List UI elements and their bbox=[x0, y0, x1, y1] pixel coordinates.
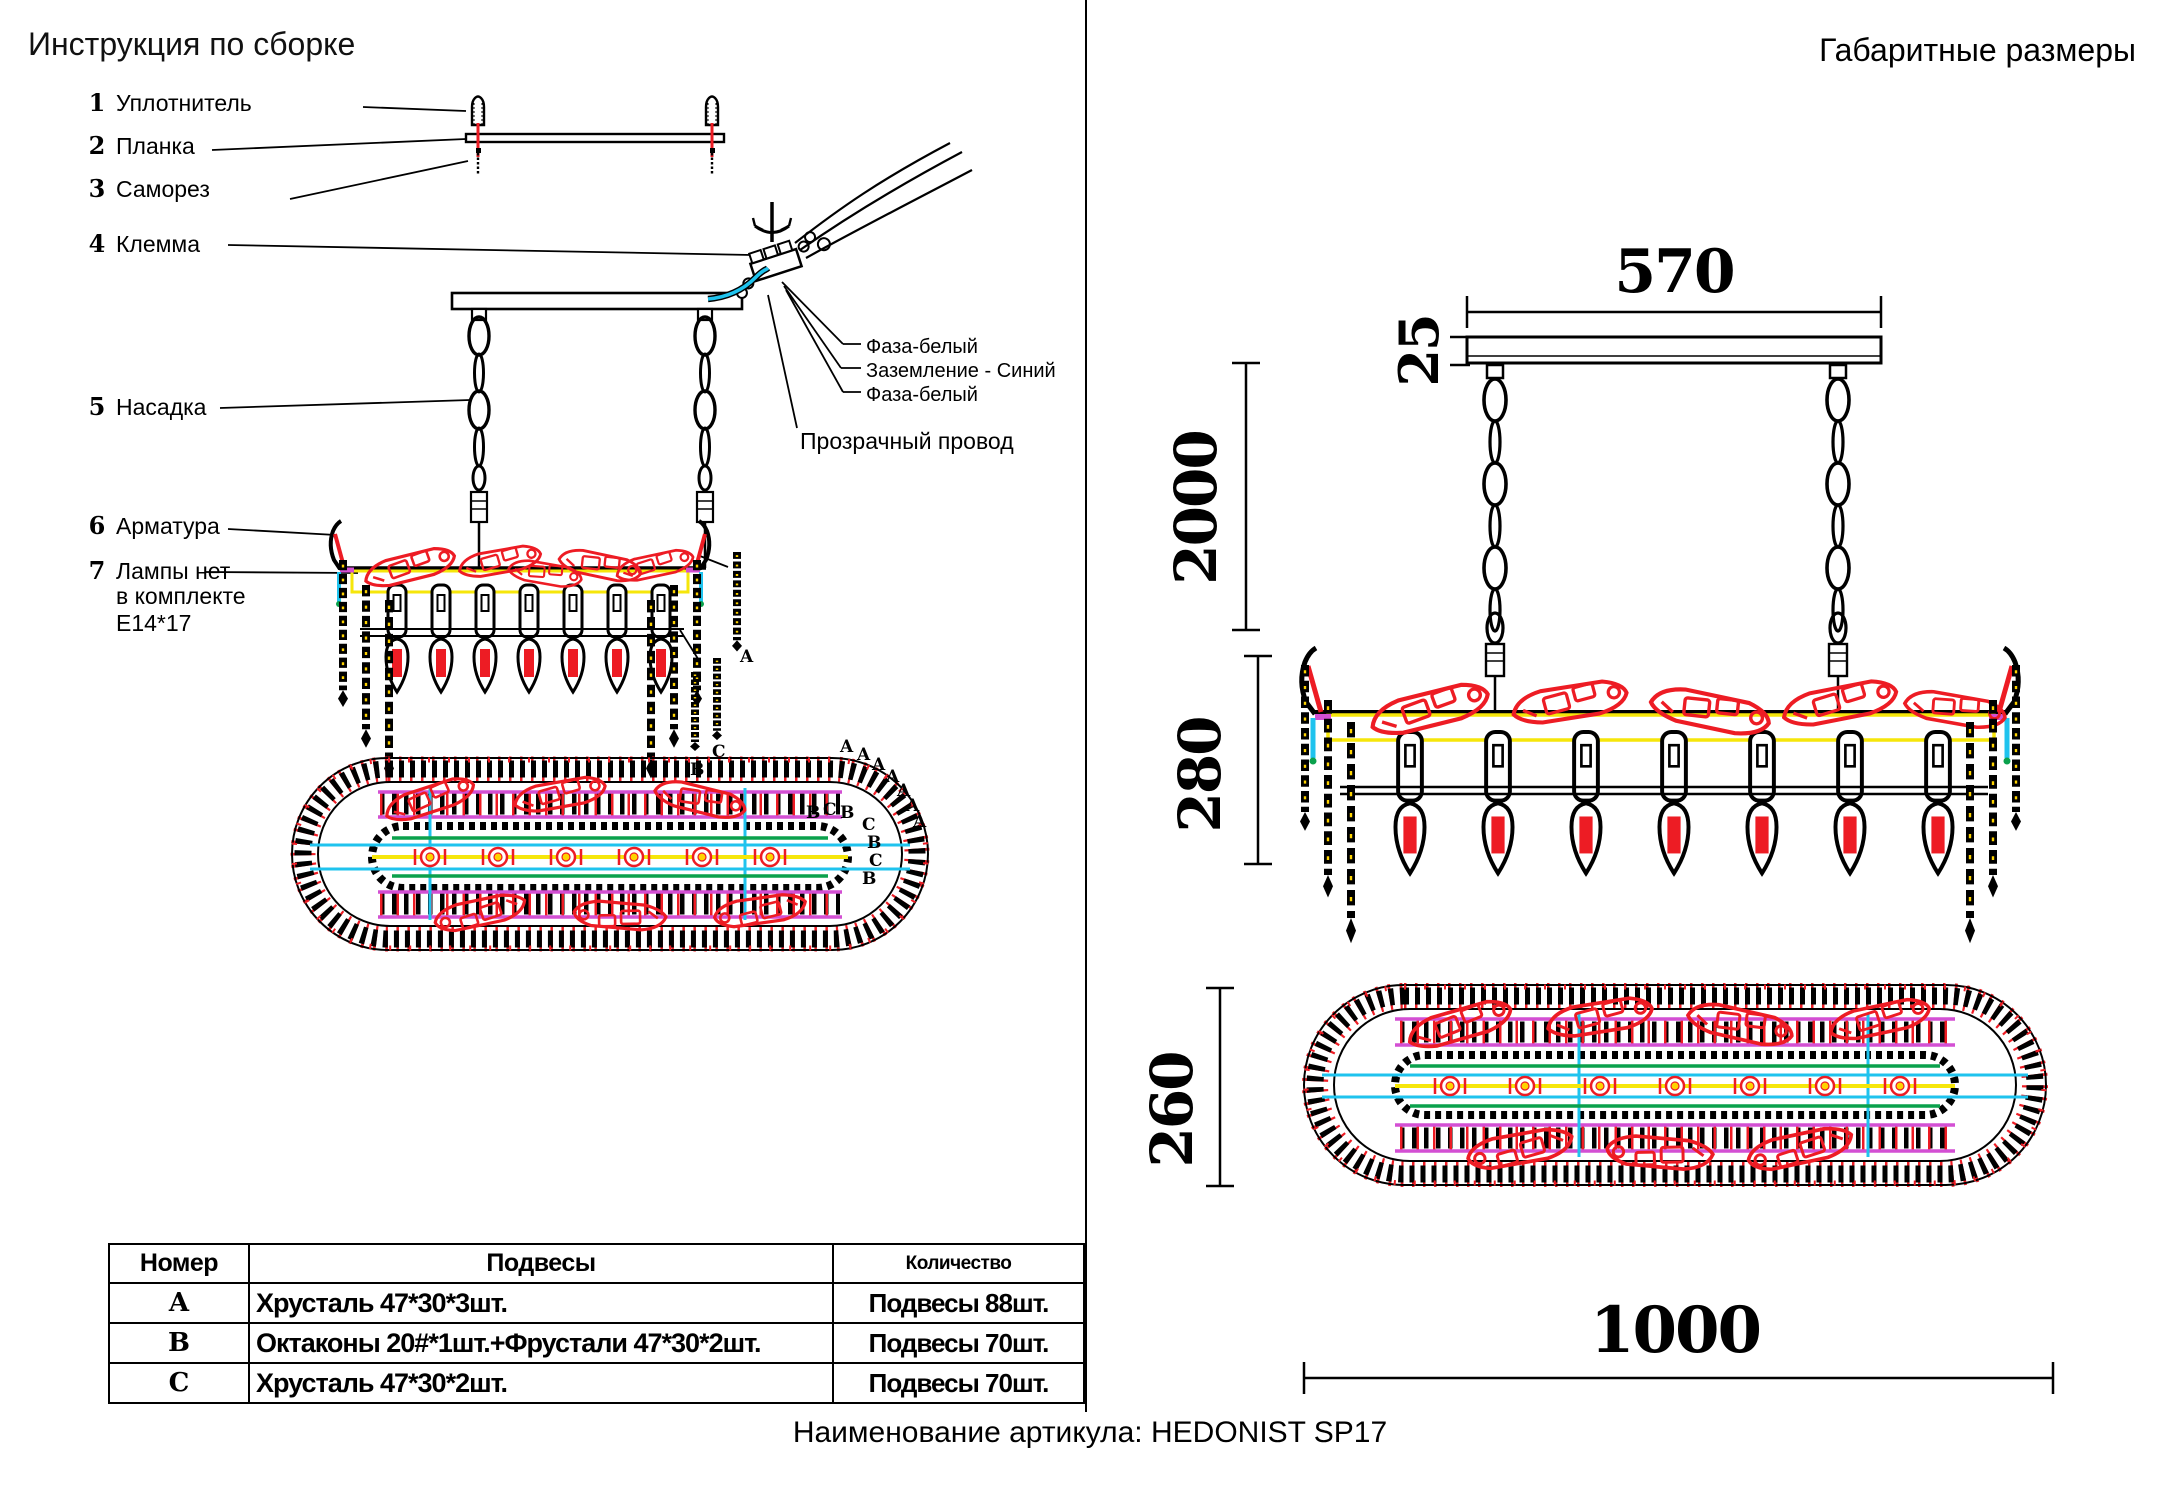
svg-text:B: B bbox=[867, 833, 881, 853]
dim-oval-length: 1000 bbox=[1590, 1293, 1760, 1368]
chains bbox=[469, 317, 715, 568]
cell-pendants: Хрусталь 47*30*3шт. bbox=[249, 1283, 833, 1323]
dim-line-280 bbox=[1244, 656, 1272, 864]
ceiling-canopy bbox=[452, 293, 742, 320]
svg-text:A: A bbox=[839, 737, 854, 757]
cell-quantity: Подвесы 88шт. bbox=[833, 1283, 1084, 1323]
article-caption: Наименование артикула: HEDONIST SP17 bbox=[590, 1416, 1590, 1450]
header-quantity: Количество bbox=[833, 1244, 1084, 1283]
svg-text:A: A bbox=[912, 812, 927, 832]
wire-leaders bbox=[768, 282, 861, 428]
cell-number: C bbox=[109, 1363, 249, 1403]
canopy bbox=[1467, 337, 1881, 363]
cell-quantity: Подвесы 70шт. bbox=[833, 1323, 1084, 1363]
top-view-oval-right bbox=[1304, 985, 2046, 1185]
cell-number: B bbox=[109, 1323, 249, 1363]
top-view-oval: A A A A A A A B C B C B C B bbox=[292, 737, 928, 950]
cell-quantity: Подвесы 70шт. bbox=[833, 1363, 1084, 1403]
dim-chain-length: 2000 bbox=[1162, 431, 1230, 584]
svg-text:C: C bbox=[823, 800, 837, 820]
plank-assembly bbox=[466, 97, 724, 175]
table-row: C Хрусталь 47*30*2шт. Подвесы 70шт. bbox=[109, 1363, 1084, 1403]
assembly-drawing: A B C bbox=[0, 0, 1085, 1240]
instruction-sheet: Инструкция по сборке 1Уплотнитель 2Планк… bbox=[0, 0, 2174, 1500]
table-row: B Октаконы 20#*1шт.+Фрустали 47*30*2шт. … bbox=[109, 1323, 1084, 1363]
cell-pendants: Хрусталь 47*30*2шт. bbox=[249, 1363, 833, 1403]
pendants-table: Номер Подвесы Количество A Хрусталь 47*3… bbox=[108, 1243, 1085, 1404]
svg-text:A: A bbox=[856, 745, 871, 765]
header-number: Номер bbox=[109, 1244, 249, 1283]
dim-canopy-width: 570 bbox=[1614, 237, 1733, 307]
panel-divider bbox=[1085, 0, 1087, 1412]
svg-text:B: B bbox=[806, 803, 820, 823]
leader-lines bbox=[205, 107, 752, 662]
dimension-drawing: 570 25 2000 bbox=[1100, 120, 2174, 1400]
dim-body-height: 280 bbox=[1166, 717, 1234, 832]
wall-plug-icon bbox=[706, 97, 718, 126]
chandelier-side-view-right bbox=[1300, 648, 2021, 943]
cell-pendants: Октаконы 20#*1шт.+Фрустали 47*30*2шт. bbox=[249, 1323, 833, 1363]
dim-line-2000 bbox=[1232, 363, 1260, 630]
strand-letter-a: A bbox=[739, 647, 754, 667]
table-header-row: Номер Подвесы Количество bbox=[109, 1244, 1084, 1283]
terminal-assembly bbox=[708, 143, 972, 428]
oval-letters: A A A A A A A B C B C B C B bbox=[806, 737, 927, 889]
dim-oval-width: 260 bbox=[1138, 1052, 1206, 1167]
header-pendants: Подвесы bbox=[249, 1244, 833, 1283]
chandelier-side-view: A B C bbox=[331, 521, 754, 780]
svg-text:B: B bbox=[862, 869, 876, 889]
cell-number: A bbox=[109, 1283, 249, 1323]
right-panel-title: Габаритные размеры bbox=[1819, 32, 2136, 69]
svg-text:C: C bbox=[869, 851, 883, 871]
chain-left bbox=[1484, 365, 1506, 712]
table-row: A Хрусталь 47*30*3шт. Подвесы 88шт. bbox=[109, 1283, 1084, 1323]
dim-line-260 bbox=[1206, 988, 1234, 1186]
rotate-arrow-icon bbox=[753, 202, 791, 242]
svg-text:B: B bbox=[840, 803, 854, 823]
dim-canopy-height: 25 bbox=[1387, 315, 1451, 386]
chain-right bbox=[1827, 365, 1849, 712]
wall-plug-icon bbox=[472, 97, 484, 126]
svg-text:A: A bbox=[871, 755, 886, 775]
svg-text:C: C bbox=[862, 815, 876, 835]
